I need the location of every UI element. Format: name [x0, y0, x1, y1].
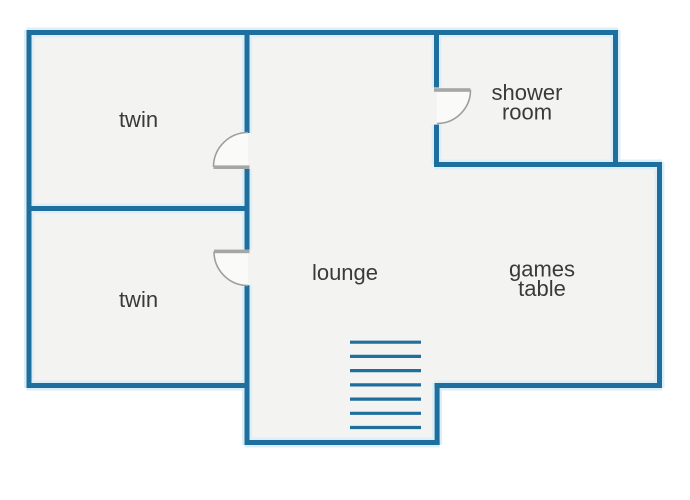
svg-text:table: table: [518, 276, 566, 301]
svg-text:twin: twin: [119, 287, 158, 312]
svg-text:lounge: lounge: [312, 260, 378, 285]
svg-text:twin: twin: [119, 107, 158, 132]
svg-text:room: room: [502, 100, 552, 125]
